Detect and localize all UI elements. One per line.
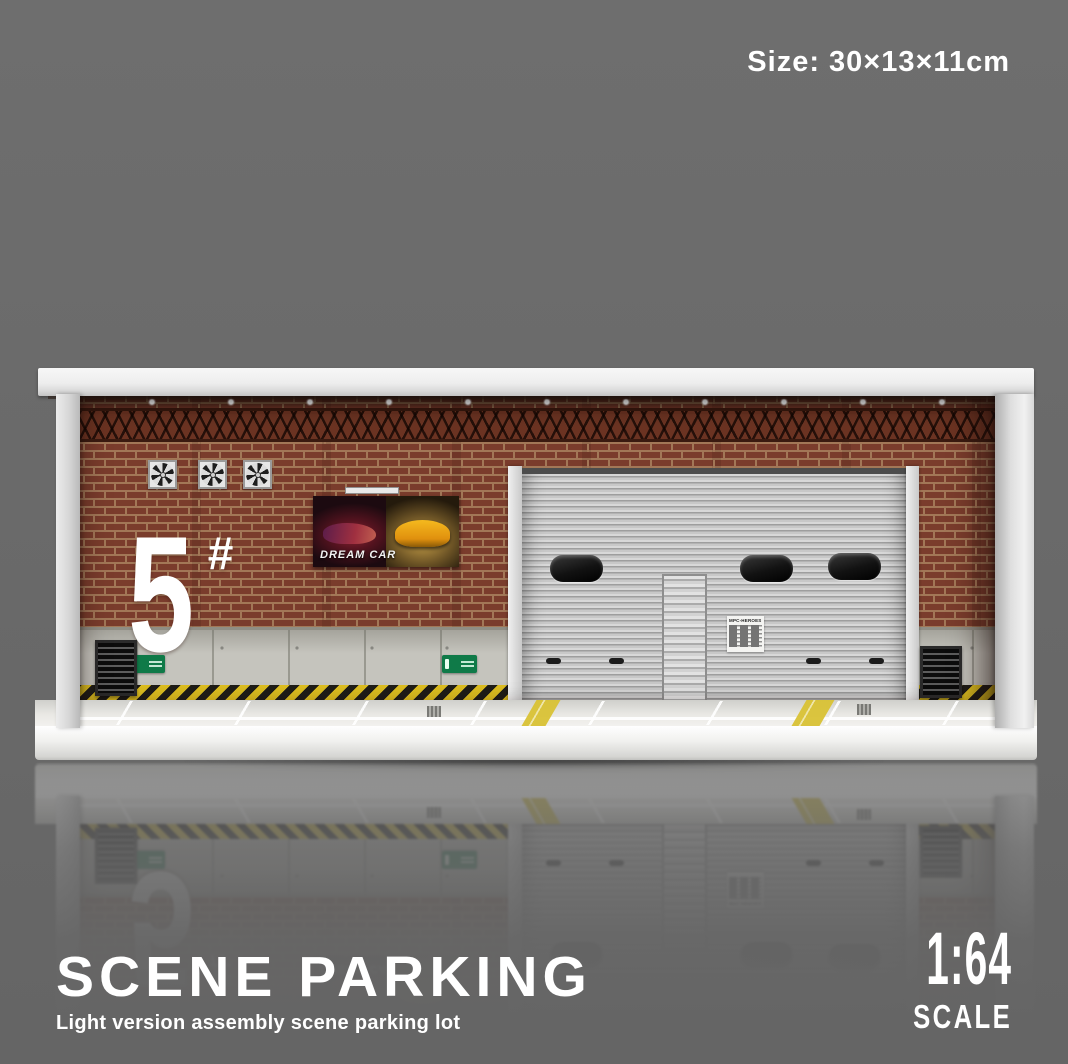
door-sticker: MPC-HEROES [727,616,764,652]
exhaust-fan-icon [148,460,177,489]
roller-shutter-door: MPC-HEROES [522,468,906,700]
exit-text-glyph [461,661,474,668]
scale-ratio: 1:64 [926,922,1012,996]
product-subtitle: Light version assembly scene parking lot [56,1012,592,1035]
qr-floor-marker [427,706,441,717]
parking-model: 5 # DREAM CAR [38,368,1034,760]
vent-grille-icon [95,640,137,696]
size-label: Size: 30×13×11cm [747,46,1010,79]
door-window [550,555,603,582]
door-window [828,553,881,580]
vent-grille-icon [920,646,962,698]
scale-block: 1:64 SCALE [856,922,1012,1036]
door-sticker-title: MPC-HEROES [729,618,762,623]
door-handle [869,658,884,664]
scale-label: SCALE [890,998,1012,1036]
door-sticker-text-lines [729,625,762,647]
door-handle [546,658,561,664]
parking-floor [35,700,1037,726]
roof-panel [38,368,1034,396]
garage-interior: 5 # DREAM CAR [62,396,997,700]
exit-text-glyph [149,661,162,668]
exhaust-fan-icon [198,460,227,489]
door-frame-left [508,466,522,704]
garage-number-hash: # [208,526,234,580]
exit-person-glyph [445,659,449,669]
garage-number: 5 # [128,524,233,666]
door-handle [806,658,821,664]
door-window [740,555,793,582]
door-lintel [522,468,906,474]
garage-number-digit: 5 [128,524,194,666]
door-handle [609,658,624,664]
exhaust-fan-icon [243,460,272,489]
product-photo: Size: 30×13×11cm 5 # DREAM CAR [0,0,1068,1064]
poster-bracket [345,487,399,494]
poster-yellow-car-image [386,496,459,567]
floor-front-edge [35,726,1037,760]
door-frame-right [906,466,919,704]
floor-base [35,700,1037,760]
brick-lattice-band [62,408,997,442]
product-title: SCENE PARKING [56,948,592,1007]
poster-title: DREAM CAR [320,549,396,561]
side-wall-left [56,394,80,728]
qr-floor-marker [857,704,871,715]
dream-car-poster: DREAM CAR [313,496,459,567]
product-title-block: SCENE PARKING Light version assembly sce… [56,948,592,1035]
man-door [662,574,707,700]
side-wall-right [995,394,1034,728]
exit-sign-icon [442,655,477,673]
